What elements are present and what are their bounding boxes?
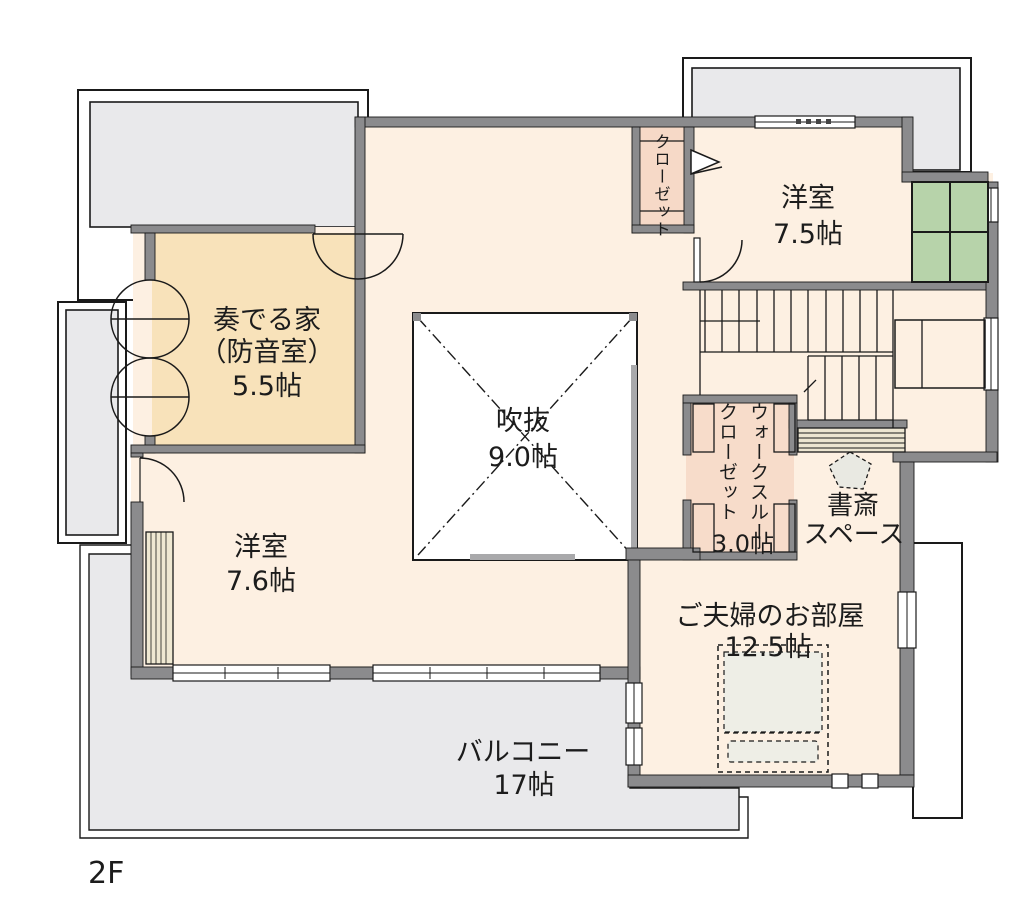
study-space-label1: 書斎 [827, 491, 879, 521]
bed-symbol [718, 645, 828, 772]
shelf-counter [146, 532, 173, 664]
western-room-75-area: 7.5帖 [773, 219, 843, 250]
soundproof-room-label: 奏でる家 [213, 305, 321, 336]
soundproof-room-label2: （防音室） [200, 337, 335, 368]
green-counter [912, 182, 988, 282]
master-bedroom-area: 12.5帖 [724, 632, 811, 663]
balcony-area: 17帖 [493, 770, 554, 801]
walk-through-closet-label1: ウォークスルー [747, 402, 769, 542]
windows-balcony-side [173, 665, 600, 681]
balcony-label: バルコニー [456, 737, 590, 768]
floor-plan-page: 奏でる家 （防音室） 5.5帖 クローゼット 洋室 7.5帖 吹抜 9.0帖 洋… [0, 0, 1024, 909]
walk-through-closet-area: 3.0帖 [712, 530, 774, 558]
eave-right [913, 543, 962, 818]
western-room-76-label: 洋室 [234, 532, 288, 563]
window-bedroom-east [898, 592, 916, 648]
atrium-label: 吹抜 [496, 406, 550, 437]
master-bedroom-label: ご夫婦のお部屋 [676, 601, 865, 632]
walk-through-closet-label2: クローゼット [716, 402, 738, 522]
study-space-label2: スペース [804, 520, 905, 550]
soundproof-room-area: 5.5帖 [232, 371, 302, 402]
desk-counter [798, 428, 905, 452]
western-room-76-area: 7.6帖 [226, 566, 296, 597]
closet-label: クローゼット [652, 133, 671, 238]
window-right-landing [984, 318, 998, 390]
window-top [755, 116, 855, 128]
atrium-area: 9.0帖 [488, 442, 558, 473]
western-room-75-label: 洋室 [781, 183, 835, 214]
floor-label: 2F [88, 856, 124, 891]
floor-plan: 奏でる家 （防音室） 5.5帖 クローゼット 洋室 7.5帖 吹抜 9.0帖 洋… [0, 0, 1024, 909]
